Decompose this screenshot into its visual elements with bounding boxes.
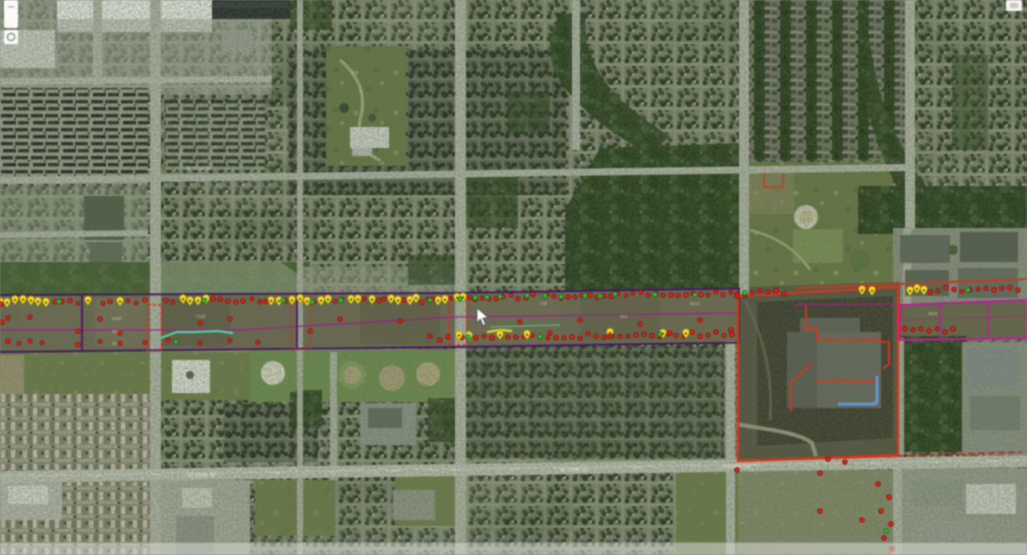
svg-text:718: 718: [540, 301, 548, 306]
svg-text:7135: 7135: [196, 314, 206, 319]
svg-text:W 159th St: W 159th St: [560, 467, 588, 473]
svg-text:4050: 4050: [112, 316, 122, 321]
svg-text:6012: 6012: [690, 301, 700, 306]
svg-text:W 159th St: W 159th St: [188, 473, 216, 479]
svg-text:4618: 4618: [928, 311, 938, 316]
svg-text:W 151st St: W 151st St: [186, 166, 211, 172]
svg-text:413: 413: [620, 314, 628, 319]
